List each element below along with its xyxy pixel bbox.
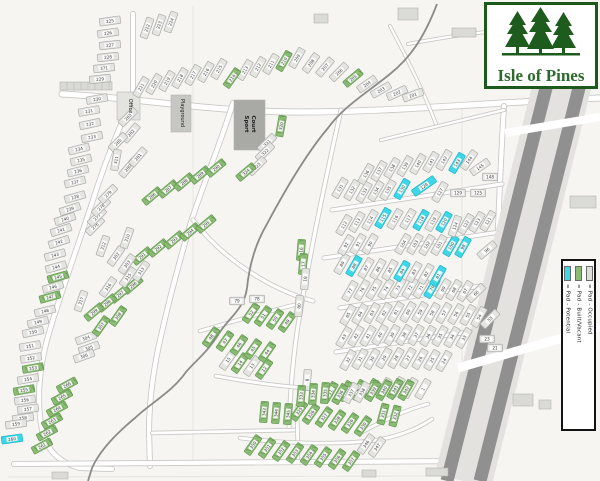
pad-lot-114: 114 <box>362 209 379 231</box>
legend-label: = Pad - Potential <box>565 284 571 333</box>
pad-lot-260: 260 <box>1 434 23 444</box>
pad-lot-210: 210 <box>276 50 293 72</box>
pad-lot-250: 250 <box>22 326 44 338</box>
map-label: Court <box>250 115 256 132</box>
pad-lot-236: 236 <box>67 165 89 177</box>
building <box>52 472 68 479</box>
pad-lot-138: 138 <box>384 157 401 179</box>
pad-number: 335 <box>322 388 328 397</box>
pad-number: 125 <box>474 191 482 196</box>
pad-lot-286: 286 <box>142 186 163 205</box>
pad-lot-223: 223 <box>152 14 166 36</box>
pad-lot-334: 334 <box>308 383 317 405</box>
pad-lot-137: 137 <box>371 160 388 182</box>
pad-number: 129 <box>454 191 462 196</box>
pad-number: 78 <box>254 297 260 302</box>
pad-lot-288: 288 <box>174 172 195 191</box>
pad-lot-241: 241 <box>50 223 72 237</box>
pad-lot-335: 335 <box>320 382 329 404</box>
pad-number: 334 <box>310 389 316 398</box>
pad-lot-254: 254 <box>17 373 39 384</box>
pad-lot-227: 227 <box>99 40 121 50</box>
pad-lot-259: 259 <box>5 419 27 429</box>
map-label: Playground <box>179 99 185 127</box>
pad-lot-212: 212 <box>250 56 267 78</box>
pad-lot-225: 225 <box>99 16 121 26</box>
building <box>314 14 328 23</box>
building <box>398 8 418 20</box>
pad-number: 333 <box>298 391 304 400</box>
legend-item-potential: = Pad - Potential <box>563 266 572 429</box>
pad-number: 343 <box>261 407 267 416</box>
pad-lot-320: 320 <box>275 115 286 137</box>
pad-lot-217: 217 <box>185 64 202 86</box>
building <box>513 394 533 406</box>
pad-lot-46: 46 <box>230 334 248 356</box>
pad-lot-228: 228 <box>97 52 119 62</box>
pad-number: 23 <box>484 337 490 342</box>
road <box>149 103 233 466</box>
logo-title: Isle of Pines <box>487 67 595 86</box>
pad-lot-140: 140 <box>410 153 427 175</box>
legend-label: = Pad - Built/Vacant <box>576 284 582 343</box>
pad-number: 79 <box>234 299 240 304</box>
pad-lot-219: 219 <box>159 70 176 92</box>
road <box>193 220 313 301</box>
map-label: Sport <box>243 115 249 132</box>
pad-lot-211: 211 <box>263 53 280 75</box>
pad-lot-78: 78 <box>250 295 265 303</box>
pad-lot-18: 18 <box>300 268 309 290</box>
storage-row <box>60 82 112 90</box>
pad-number: 17 <box>300 261 305 267</box>
pad-lot-251: 251 <box>19 340 41 351</box>
pad-number: 148 <box>486 175 494 180</box>
pad-lot-281: 281 <box>128 147 147 168</box>
road <box>381 110 504 140</box>
pad-lot-136: 136 <box>358 163 375 185</box>
legend-item-occupied: = Pad - Occupied <box>585 266 594 429</box>
pad-number: 371 <box>100 65 109 71</box>
pad-number: 345 <box>285 409 291 418</box>
pad-status-legend: = Pad - Potential = Pad - Built/Vacant =… <box>561 259 596 431</box>
pad-number: 18 <box>302 276 307 282</box>
pad-lot-287: 287 <box>158 179 179 198</box>
building <box>452 28 476 37</box>
pad-lot-317: 317 <box>74 290 88 312</box>
pad-lot-113: 113 <box>349 211 366 233</box>
pad-lot-232: 232 <box>79 118 101 130</box>
pad-lot-238: 238 <box>64 191 86 204</box>
pad-lot-371: 371 <box>93 63 115 73</box>
pad-lot-252: 252 <box>20 352 42 363</box>
pad-lot-80: 80 <box>294 295 303 317</box>
pad-lot-255: 255 <box>13 384 35 395</box>
pad-number: 229 <box>96 76 105 82</box>
pad-lot-249: 249 <box>27 316 49 328</box>
pad-lot-218: 218 <box>172 67 189 89</box>
pad-lot-141: 141 <box>423 151 440 173</box>
pad-lot-21: 21 <box>488 344 503 352</box>
building <box>362 470 376 477</box>
building <box>426 468 448 476</box>
pad-lot-344: 344 <box>271 402 280 424</box>
pad-lot-112: 112 <box>336 214 353 236</box>
pad-lot-256: 256 <box>14 395 36 405</box>
pad-lot-125: 125 <box>471 189 486 197</box>
pad-number: 344 <box>273 408 279 417</box>
pad-lot-312: 312 <box>96 235 110 257</box>
pad-lot-307: 307 <box>92 315 110 337</box>
pad-lot-226: 226 <box>97 28 119 38</box>
highway-shoulder <box>463 82 563 481</box>
map-label: Office <box>127 99 133 114</box>
road <box>62 94 600 112</box>
pad-lot-308: 308 <box>109 305 127 327</box>
pad-lot-231: 231 <box>78 105 100 116</box>
legend-label: = Pad - Occupied <box>587 284 593 335</box>
pad-lot-216: 216 <box>198 61 215 83</box>
pad-lot-220: 220 <box>146 73 163 95</box>
pad-lot-222: 222 <box>140 17 154 39</box>
pad-lot-215: 215 <box>211 58 228 80</box>
pad-lot-129: 129 <box>451 189 466 197</box>
section-line <box>8 476 452 477</box>
logo-isle-of-pines: Isle of Pines <box>484 2 598 89</box>
pad-lot-343: 343 <box>259 401 268 423</box>
built-vacant-color-chip <box>575 266 582 281</box>
potential-color-chip <box>564 266 571 281</box>
pad-number: 16 <box>298 247 303 253</box>
pad-lot-243: 243 <box>44 249 66 262</box>
isle-of-pines-site-map: 1234567811121314151617182123242526272829… <box>0 0 600 481</box>
pine-trees-icon <box>488 5 594 61</box>
pad-lot-310: 310 <box>120 227 134 249</box>
pad-lot-235: 235 <box>70 154 92 166</box>
legend-item-built-vacant: = Pad - Built/Vacant <box>574 266 583 429</box>
building <box>570 196 596 208</box>
pad-lot-139: 139 <box>397 155 414 177</box>
pad-number: 21 <box>492 346 498 351</box>
pad-lot-234: 234 <box>68 143 90 155</box>
pad-lot-292: 292 <box>148 238 169 257</box>
pad-lot-233: 233 <box>81 131 103 143</box>
pad-lot-148: 148 <box>483 173 498 181</box>
pad-lot-331: 331 <box>377 403 390 425</box>
pad-lot-333: 333 <box>296 385 305 407</box>
occupied-color-chip <box>586 266 593 281</box>
pad-lot-79: 79 <box>230 297 245 305</box>
pad-lot-345: 345 <box>283 403 292 425</box>
pad-number: 227 <box>106 42 115 48</box>
pad-number: 228 <box>104 54 113 60</box>
road-casing <box>149 103 233 466</box>
pad-lot-242: 242 <box>48 235 70 249</box>
pad-lot-257: 257 <box>17 404 39 414</box>
building <box>539 400 551 409</box>
pad-lot-237: 237 <box>64 176 86 188</box>
pad-number: 80 <box>296 303 301 309</box>
road-casing <box>193 220 313 301</box>
pad-lot-23: 23 <box>480 335 495 343</box>
pad-lot-224: 224 <box>164 11 178 33</box>
pad-lot-209: 209 <box>289 47 306 69</box>
